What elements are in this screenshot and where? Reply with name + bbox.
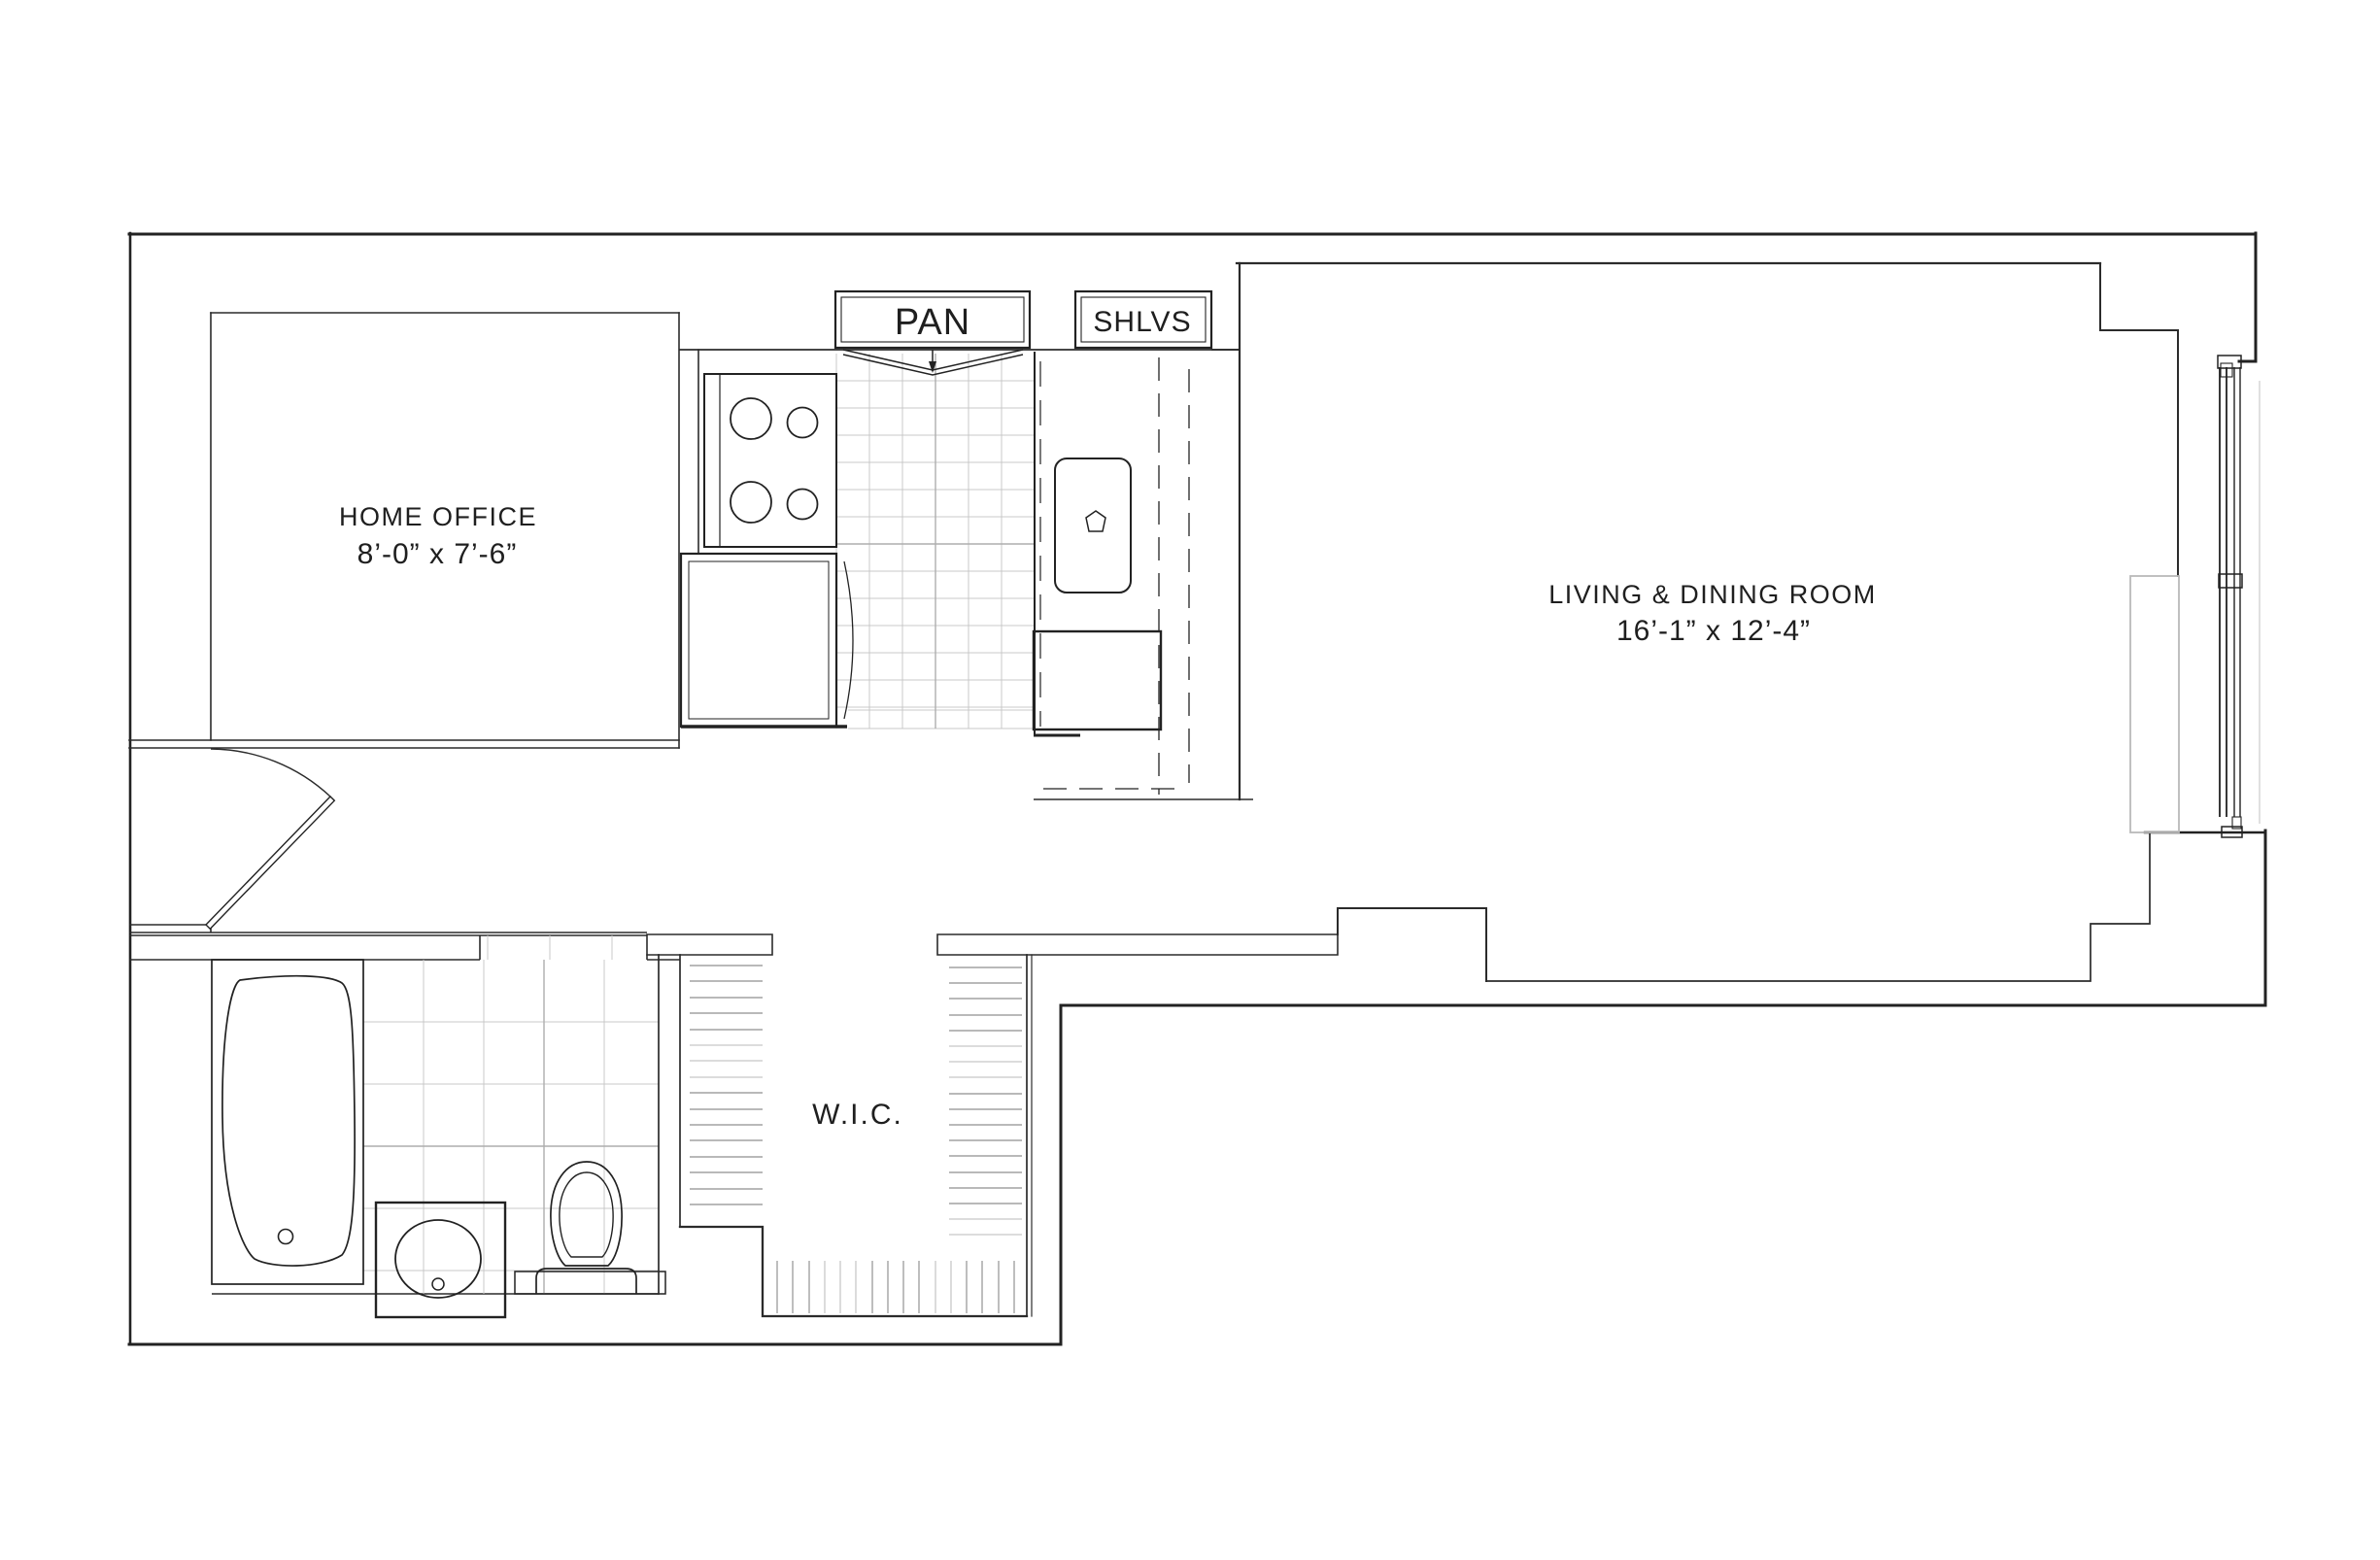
shelves-label: SHLVS: [1093, 306, 1191, 338]
exterior-walls: [129, 233, 2265, 1344]
closet-shelving-right-icon: [949, 967, 1022, 1235]
pantry-bifold-door-icon: [843, 350, 1023, 375]
home-office-label: HOME OFFICE: [339, 502, 537, 531]
living-dining-dims: 16’-1” x 12’-4”: [1616, 615, 1811, 647]
entry-door-leaf-icon: [206, 797, 334, 929]
faucet-icon: [1086, 511, 1105, 531]
window-assembly: [2130, 356, 2260, 837]
entry-door: [129, 749, 647, 933]
closet-shelving-left-icon: [690, 966, 763, 1204]
closet-rod-hatch-icon: [777, 1261, 1014, 1313]
toilet-icon: [515, 1162, 665, 1294]
radiator-icon: [2130, 576, 2179, 832]
vanity-sink-icon: [376, 1203, 505, 1317]
kitchen-sink-icon: [1055, 458, 1131, 593]
bathtub-icon: [212, 960, 363, 1284]
entry-door-swing-arc-icon: [211, 749, 330, 797]
stove-icon: [704, 374, 836, 547]
wic-label: W.I.C.: [812, 1099, 903, 1131]
kitchen: [679, 350, 1253, 799]
walk-in-closet: [659, 955, 1032, 1316]
pantry-label: PAN: [895, 302, 970, 343]
kitchen-counter-icon: [681, 554, 853, 727]
floor-plan-canvas: HOME OFFICE 8’-0” x 7’-6” LIVING & DININ…: [0, 0, 2380, 1560]
living-dining-label: LIVING & DINING ROOM: [1548, 580, 1877, 609]
bathroom-tile-grid: [363, 935, 659, 1294]
kitchen-sink-counter: [1034, 352, 1161, 735]
home-office-dims: 8’-0” x 7’-6”: [357, 538, 518, 570]
corridor-walls: [647, 934, 1338, 955]
base-cabinet-icon: [1034, 631, 1161, 729]
bathroom: [129, 934, 680, 1317]
window-glazing-icon: [2218, 356, 2242, 837]
